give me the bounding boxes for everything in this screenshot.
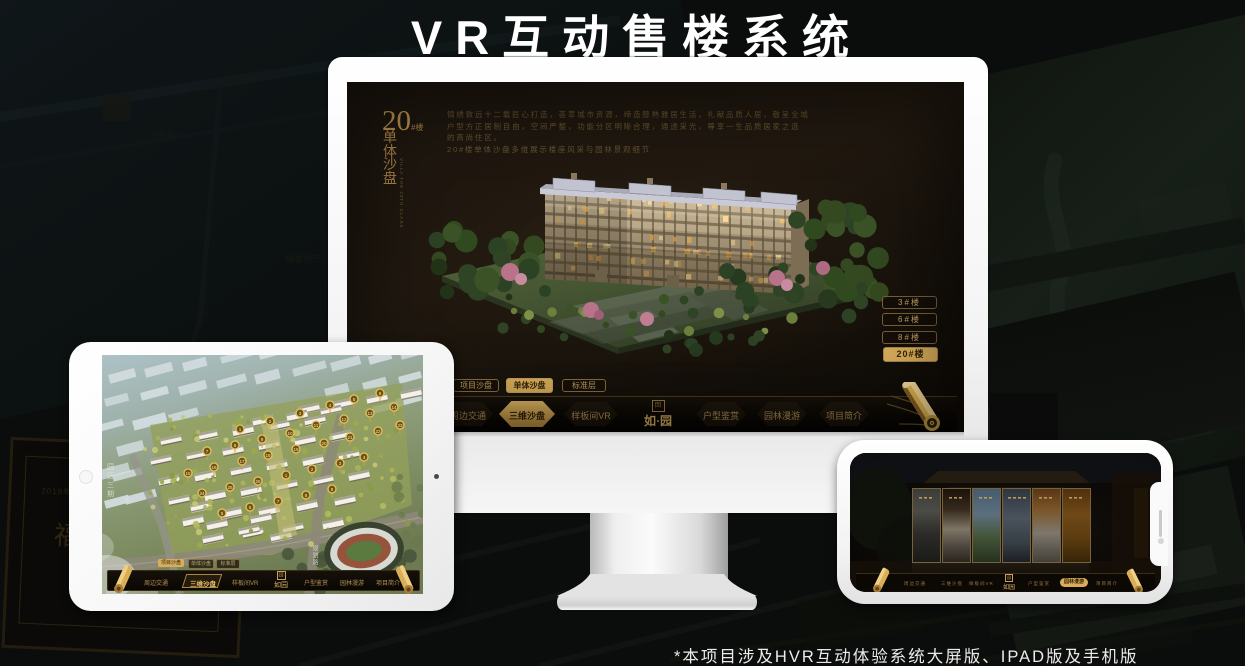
svg-text:4: 4 bbox=[329, 403, 332, 408]
svg-text:1: 1 bbox=[285, 473, 288, 478]
svg-text:福星路: 福星路 bbox=[150, 130, 174, 140]
svg-text:14: 14 bbox=[391, 405, 397, 410]
svg-text:5: 5 bbox=[353, 397, 356, 402]
svg-text:25: 25 bbox=[227, 485, 233, 490]
svg-text:2: 2 bbox=[311, 467, 314, 472]
svg-text:1: 1 bbox=[239, 427, 242, 432]
svg-text:24: 24 bbox=[199, 491, 205, 496]
svg-text:13: 13 bbox=[367, 411, 373, 416]
svg-text:3: 3 bbox=[339, 461, 342, 466]
svg-text:7: 7 bbox=[206, 449, 209, 454]
svg-text:10: 10 bbox=[287, 431, 293, 436]
svg-text:3: 3 bbox=[299, 411, 302, 416]
svg-text:5: 5 bbox=[221, 511, 224, 516]
svg-text:20: 20 bbox=[321, 441, 327, 446]
svg-text:19: 19 bbox=[293, 447, 299, 452]
svg-text:23: 23 bbox=[397, 423, 403, 428]
svg-text:15: 15 bbox=[185, 471, 191, 476]
svg-text:26: 26 bbox=[255, 479, 261, 484]
svg-text:17: 17 bbox=[239, 459, 245, 464]
svg-text:园区三期: 园区三期 bbox=[107, 463, 115, 499]
svg-text:7: 7 bbox=[277, 499, 280, 504]
svg-text:12: 12 bbox=[341, 417, 347, 422]
svg-text:18: 18 bbox=[265, 453, 271, 458]
svg-text:4: 4 bbox=[363, 455, 366, 460]
svg-text:11: 11 bbox=[314, 423, 319, 428]
svg-text:2: 2 bbox=[269, 419, 272, 424]
svg-text:21: 21 bbox=[347, 435, 353, 440]
svg-text:9: 9 bbox=[261, 437, 264, 442]
svg-text:8: 8 bbox=[305, 493, 308, 498]
svg-text:22: 22 bbox=[375, 429, 381, 434]
svg-text:8: 8 bbox=[234, 443, 237, 448]
svg-text:滨湖西路: 滨湖西路 bbox=[201, 284, 210, 317]
svg-text:9: 9 bbox=[331, 487, 334, 492]
svg-text:6: 6 bbox=[249, 505, 252, 510]
svg-text:16: 16 bbox=[211, 465, 217, 470]
svg-text:6: 6 bbox=[379, 391, 382, 396]
svg-text:福星地产: 福星地产 bbox=[285, 253, 321, 264]
svg-text:规划路: 规划路 bbox=[311, 544, 318, 566]
